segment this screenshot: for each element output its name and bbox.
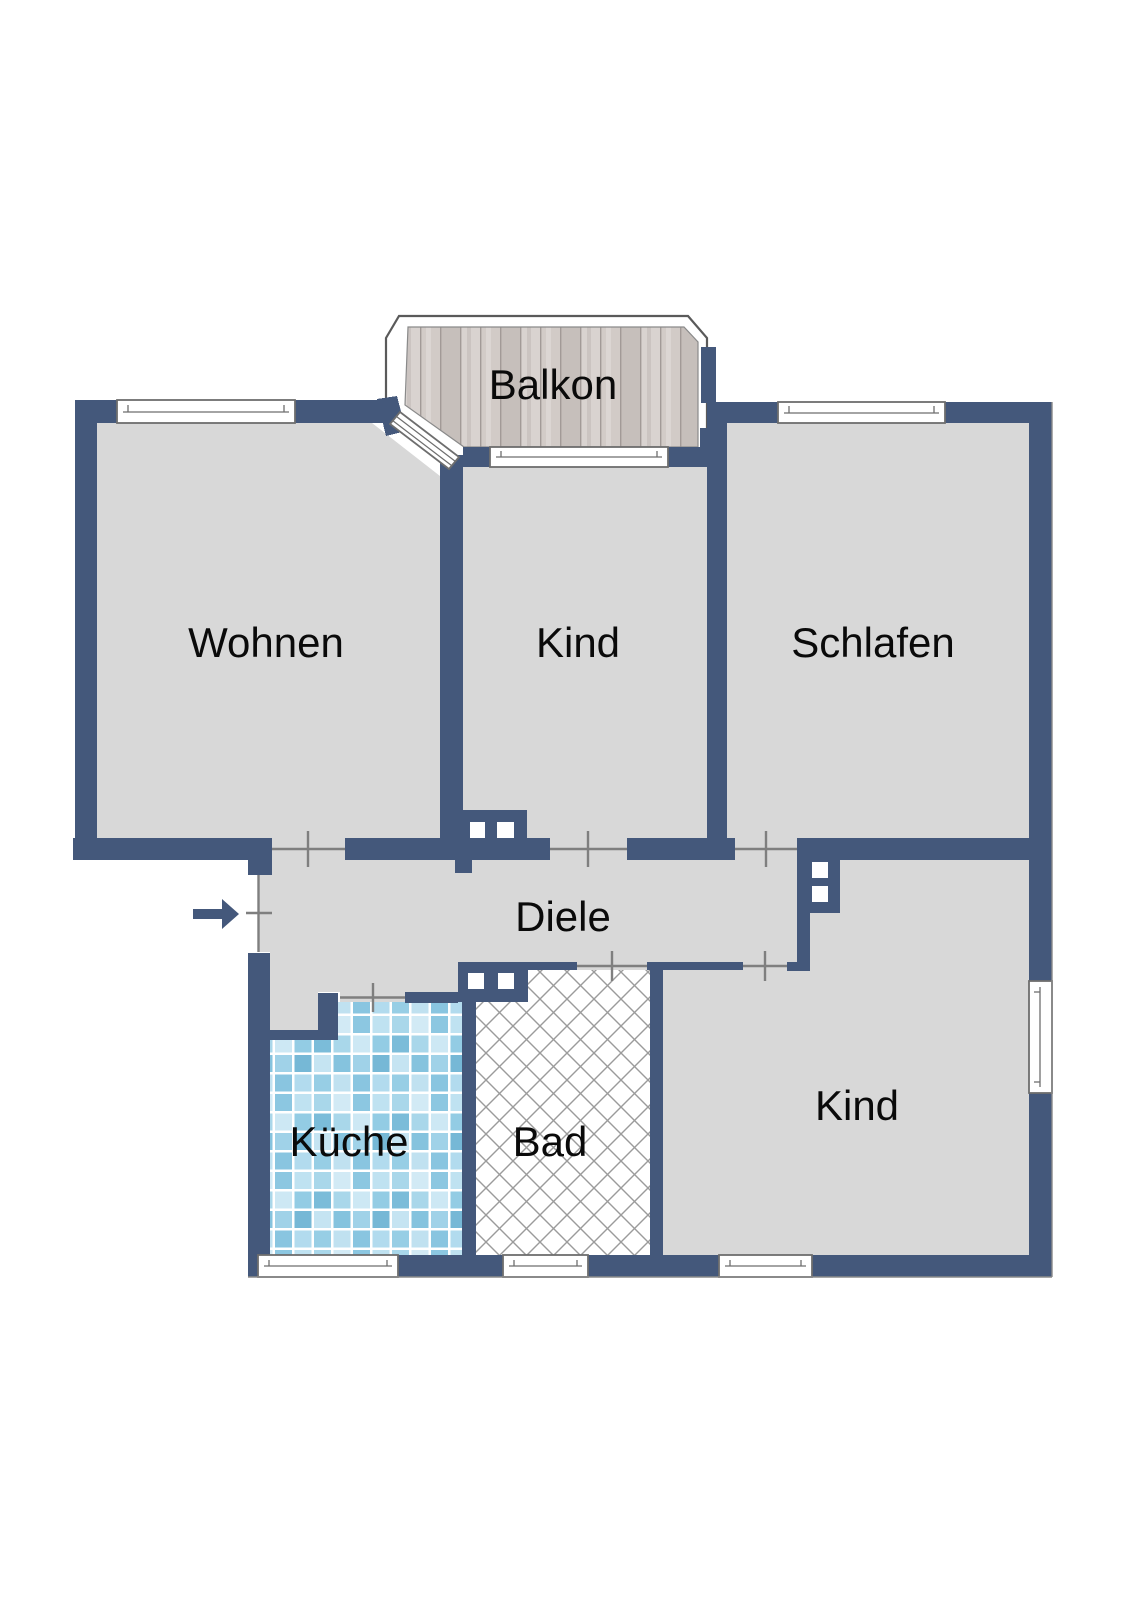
room-label-schlafen: Schlafen (791, 619, 954, 666)
wall-entrance-stub (248, 860, 272, 875)
wall-foot (787, 962, 810, 971)
room-label-kind-oben: Kind (536, 619, 620, 666)
floor-plan-page: Balkon Wohnen Kind Schlafen Diele Küche … (0, 0, 1131, 1600)
wall-bad-west (462, 1002, 476, 1255)
floor-plan-drawing: Balkon Wohnen Kind Schlafen Diele Küche … (0, 0, 1131, 1600)
wall-balcony-stub-right (701, 347, 716, 403)
flue-opening (468, 973, 484, 989)
window-schlafen-north (778, 402, 945, 423)
wall-bad-north (647, 962, 663, 970)
wall-diele-north (527, 838, 550, 860)
wall-kind-schlafen (707, 402, 727, 838)
wall-exterior-left-lower (248, 953, 270, 1277)
entrance-arrow-icon (193, 899, 239, 929)
window-kind-oben-balcony (490, 447, 668, 467)
room-bad-floor (476, 970, 650, 1255)
room-label-kind-unten: Kind (815, 1082, 899, 1129)
wall-exterior-right (1029, 402, 1052, 1277)
wall-exterior-left-upper (75, 400, 97, 860)
wall-kind-unten-north (840, 838, 1029, 860)
window-kueche-south (258, 1255, 398, 1277)
wall-balcony-stub-right-lower (700, 428, 716, 447)
wall-diele-north (627, 838, 735, 860)
wall-bad-north (528, 962, 577, 970)
window-kind-unten-south (719, 1255, 812, 1277)
flue-opening (497, 822, 514, 838)
wall-kind-unten-north-thin (663, 962, 743, 970)
room-label-diele: Diele (515, 893, 611, 940)
window-kind-unten-east (1029, 981, 1052, 1093)
wall-wohnen-kind (440, 455, 463, 838)
window-bad-south (503, 1255, 588, 1277)
wall-kueche-step (270, 1030, 318, 1040)
room-label-balkon: Balkon (489, 361, 617, 408)
wall-diele-north (345, 838, 463, 860)
room-label-kueche: Küche (289, 1118, 408, 1165)
flue-opening (812, 886, 828, 902)
wall-kueche-north (405, 992, 458, 1003)
flue-opening (470, 822, 485, 838)
room-label-wohnen: Wohnen (188, 619, 344, 666)
wall-bad-east (650, 970, 663, 1255)
flue-opening (812, 862, 828, 878)
flue-opening (498, 973, 514, 989)
wall-diele-north-west (73, 838, 272, 860)
window-wohnen-north (117, 400, 295, 423)
wall-small-stub (455, 860, 472, 873)
wall-kueche-stub (318, 993, 338, 1040)
room-label-bad: Bad (513, 1118, 588, 1165)
